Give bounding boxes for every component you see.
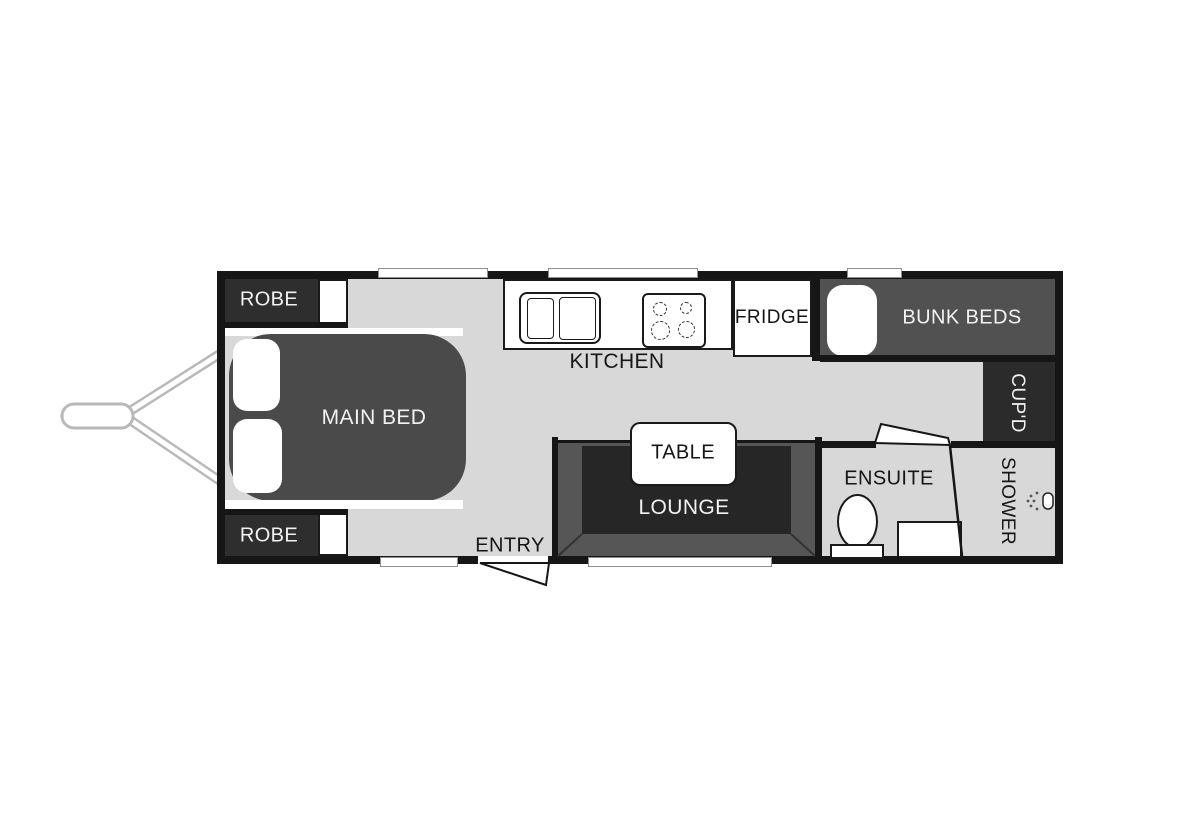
fridge-label: FRIDGE — [735, 307, 809, 329]
main-bed-label: MAIN BED — [322, 406, 427, 430]
cupboard-label: CUP'D — [1006, 373, 1028, 432]
robe-top-label: ROBE — [240, 289, 298, 312]
lounge-seam — [558, 534, 582, 556]
bunk-beds-label: BUNK BEDS — [902, 307, 1021, 330]
ensuite-door-swing-icon — [875, 424, 950, 445]
shower-screen-line — [950, 446, 962, 556]
ensuite-label: ENSUITE — [844, 468, 933, 491]
robe-bottom-label: ROBE — [240, 525, 298, 548]
floorplan-canvas: ROBE ROBE MAIN BED KITCHEN FRIDGE BUNK B… — [0, 0, 1200, 829]
entry-label: ENTRY — [475, 535, 544, 558]
entry-door-swing-icon — [480, 563, 549, 585]
shower-label: SHOWER — [996, 457, 1018, 545]
lounge-seam — [791, 534, 815, 556]
table-label: TABLE — [651, 442, 715, 465]
lounge-label: LOUNGE — [638, 496, 729, 520]
shower-head-icon — [1027, 492, 1053, 511]
kitchen-label: KITCHEN — [570, 350, 665, 374]
